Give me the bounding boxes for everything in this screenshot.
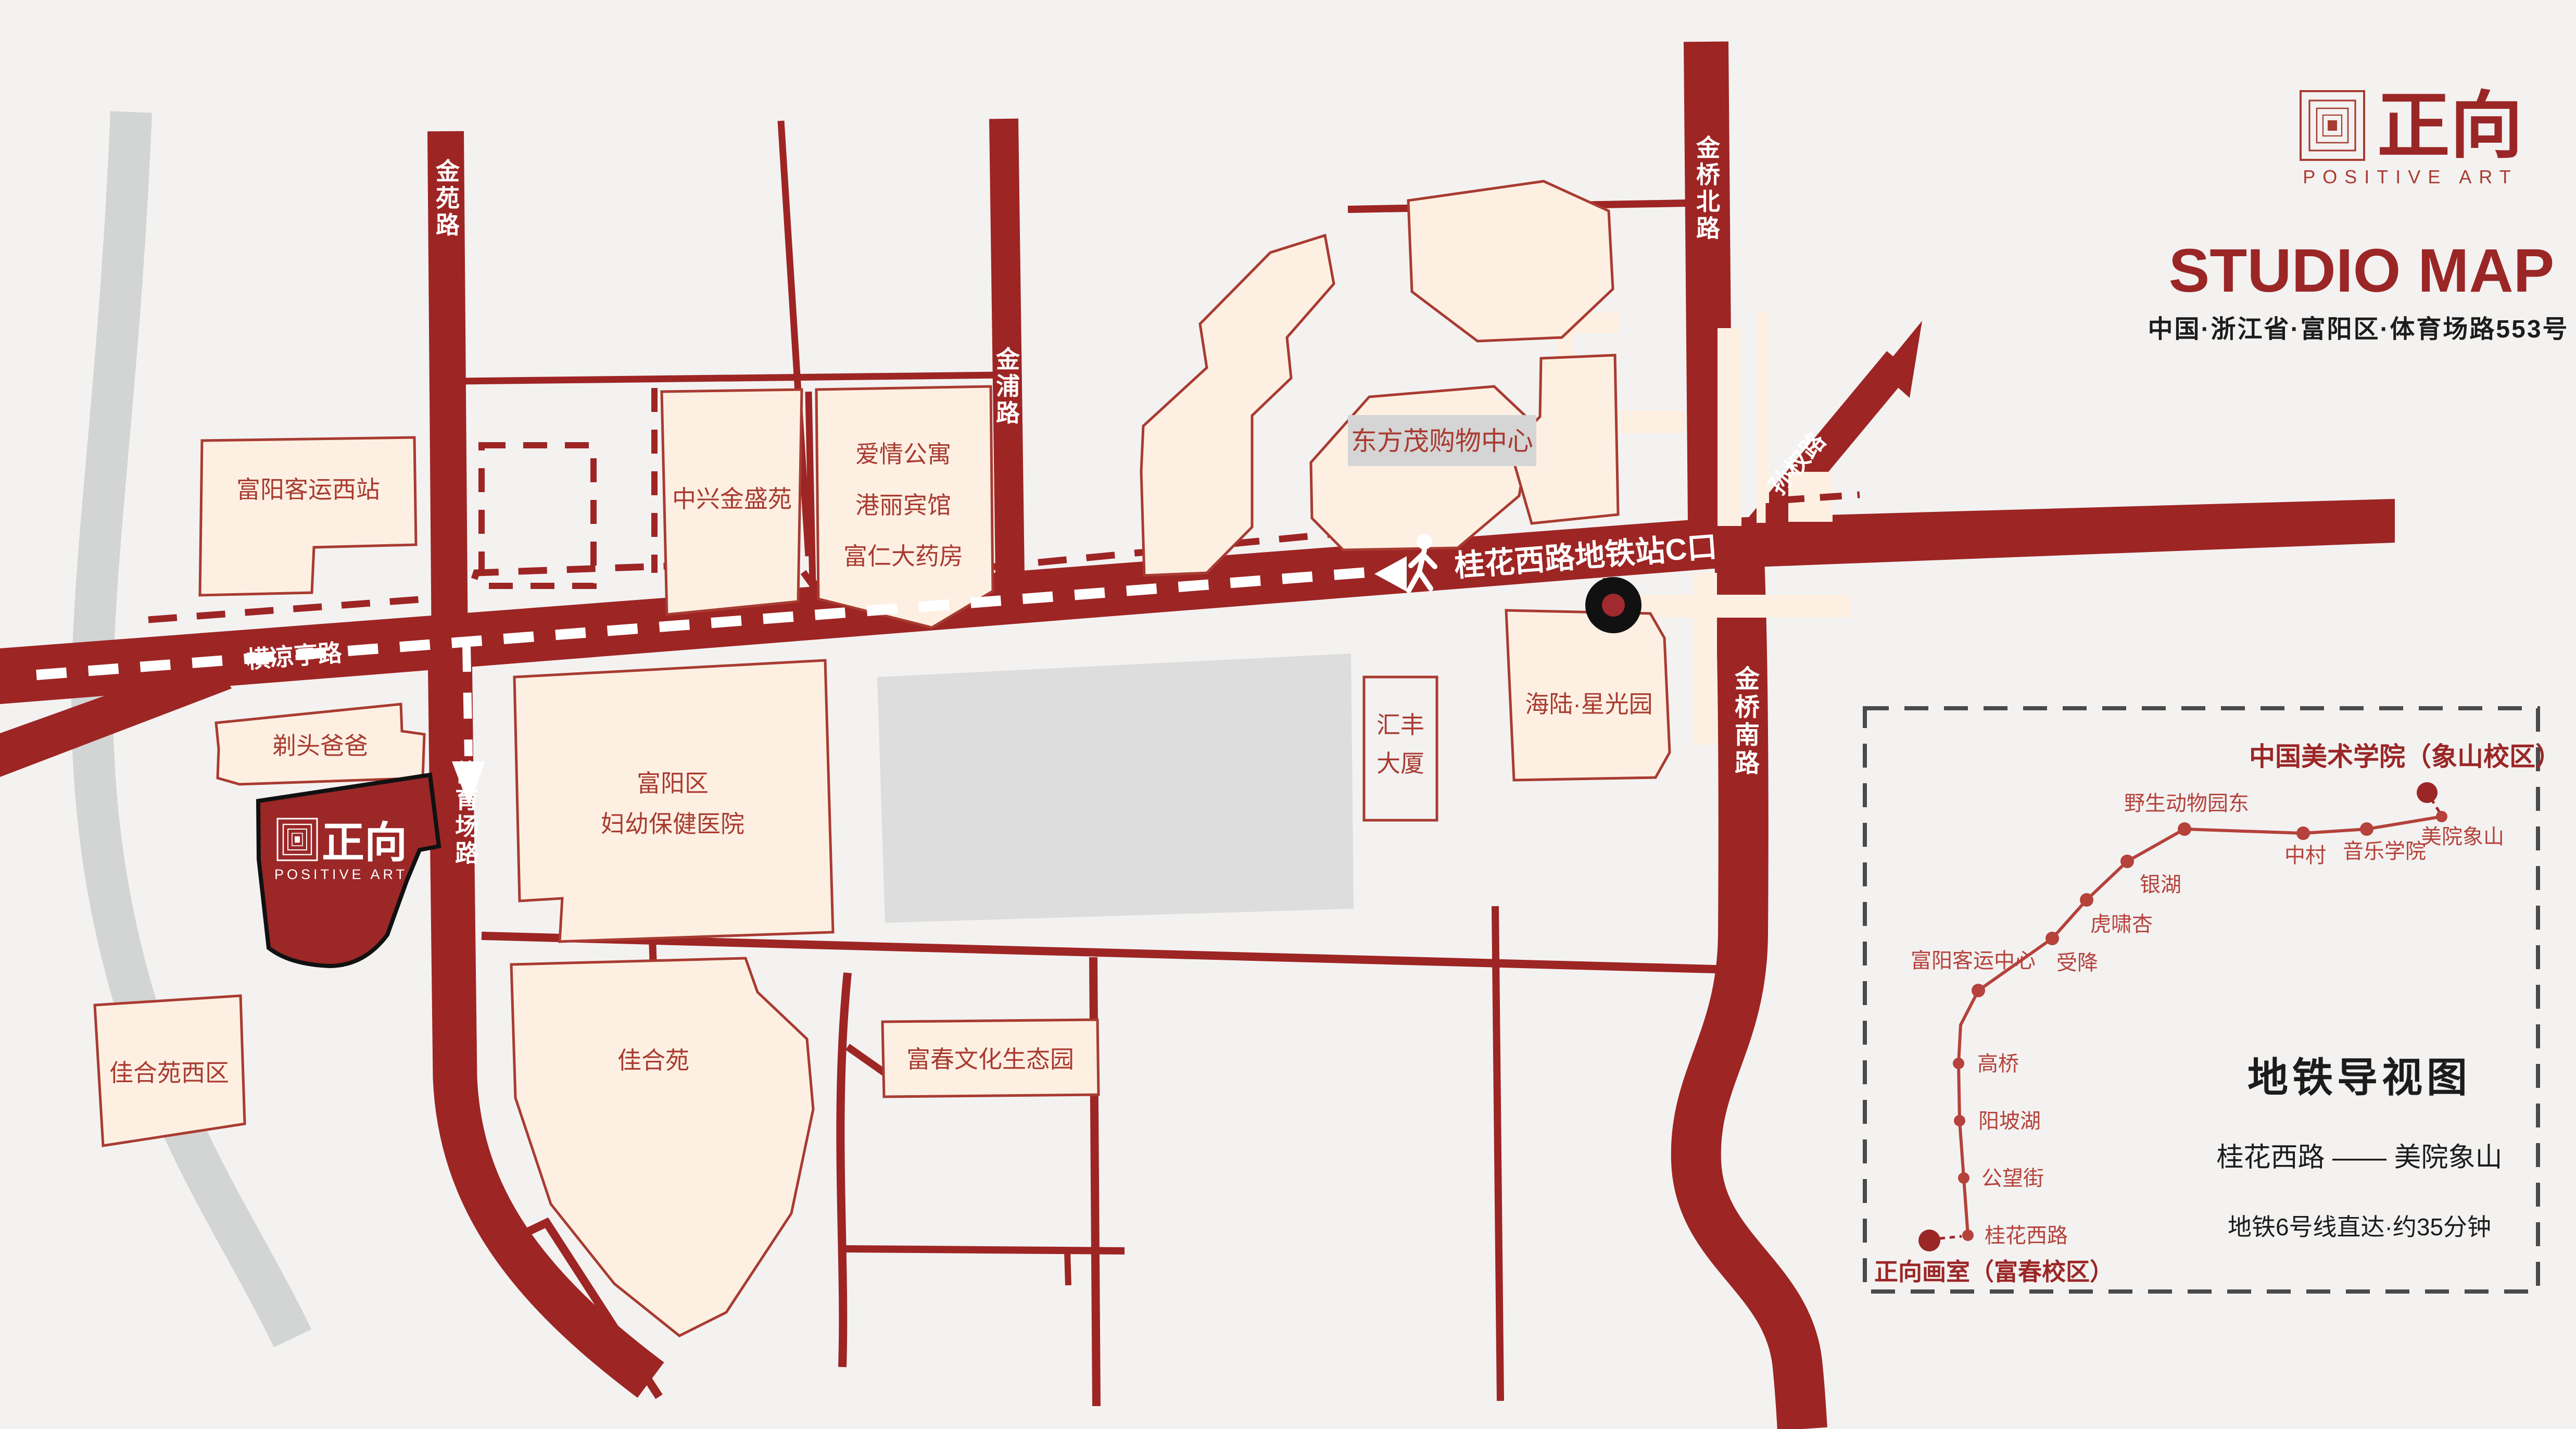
label-fuchun-park: 富春文化生态园 xyxy=(906,1046,1074,1073)
label-love-apartment: 爱情公寓 xyxy=(855,441,951,468)
label-hospital-1: 富阳区 xyxy=(637,770,709,797)
metro-station-label: 音乐学院 xyxy=(2343,840,2426,863)
metro-station xyxy=(2080,893,2093,907)
label-furen-pharmacy: 富仁大药房 xyxy=(843,543,963,570)
metro-station xyxy=(2360,822,2373,836)
metro-panel-route: 桂花西路 —— 美院象山 xyxy=(2217,1143,2503,1173)
metro-station-label: 高桥 xyxy=(1977,1052,2019,1075)
page-title: STUDIO MAP xyxy=(2169,236,2555,305)
label-jiaheyuan: 佳合苑 xyxy=(617,1047,689,1074)
metro-station-label: 阳坡湖 xyxy=(1978,1110,2041,1133)
metro-panel-title: 地铁导视图 xyxy=(2247,1055,2471,1100)
label-road-jinqiao-south: 金桥南路 xyxy=(1734,666,1760,777)
label-hailu: 海陆·星光园 xyxy=(1525,691,1652,718)
label-huifeng-1: 汇丰 xyxy=(1377,711,1424,738)
label-road-jinqiao-north: 金桥北路 xyxy=(1696,134,1721,242)
road-thin-vert-4 xyxy=(1495,906,1500,1401)
metro-station xyxy=(1954,1115,1965,1126)
building-hospital xyxy=(514,660,833,942)
label-titou-baba: 剃头爸爸 xyxy=(272,732,368,759)
metro-station-label: 富阳客运中心 xyxy=(1911,949,2036,972)
label-west-bus-station: 富阳客运西站 xyxy=(236,476,380,503)
metro-origin-label: 正向画室（富春校区） xyxy=(1874,1258,2114,1285)
metro-station-label: 桂花西路 xyxy=(1985,1224,2068,1247)
metro-station xyxy=(2296,826,2310,840)
origin-dot xyxy=(1918,1230,1940,1251)
metro-station-label: 银湖 xyxy=(2140,873,2181,896)
metro-panel-note: 地铁6号线直达·约35分钟 xyxy=(2228,1213,2491,1240)
brand-name-cn: 正向 xyxy=(2377,85,2523,167)
metro-entrance-marker xyxy=(1585,577,1641,633)
brand-name-en: POSITIVE ART xyxy=(2303,166,2518,187)
label-gangli-hotel: 港丽宾馆 xyxy=(855,492,951,519)
road-thin-horiz-2 xyxy=(843,1249,1125,1251)
metro-station xyxy=(1958,1172,1969,1184)
metro-station xyxy=(2436,811,2447,822)
studio-logo-en: POSITIVE ART xyxy=(274,867,408,882)
metro-terminus-label: 中国美术学院（象山校区） xyxy=(2249,742,2561,771)
metro-station xyxy=(1972,984,1985,997)
label-huifeng-2: 大厦 xyxy=(1377,750,1424,777)
metro-station-label: 野生动物园东 xyxy=(2124,792,2249,815)
label-jiaheyuan-west: 佳合苑西区 xyxy=(109,1059,229,1086)
road-jinqiao-north xyxy=(1706,42,1710,521)
metro-station xyxy=(1962,1230,1974,1241)
metro-station-label: 中村 xyxy=(2284,844,2326,867)
metro-station-label: 受降 xyxy=(2056,951,2098,974)
metro-station-label: 公望街 xyxy=(1981,1167,2044,1190)
studio-logo-icon xyxy=(277,819,317,860)
studio-map-poster: 富阳客运西站 中兴金盛苑 爱情公寓 港丽宾馆 富仁大药房 东方茂购物中心 汇丰 … xyxy=(0,0,2576,1429)
label-zhongxing: 中兴金盛苑 xyxy=(672,485,792,512)
metro-station-label: 美院象山 xyxy=(2421,825,2504,848)
label-road-jinpu: 金浦路 xyxy=(995,346,1020,427)
terminus-dot xyxy=(2417,782,2438,803)
metro-station xyxy=(2120,855,2134,868)
studio-logo-cn: 正向 xyxy=(322,819,407,867)
label-hospital-2: 妇幼保健医院 xyxy=(601,810,744,837)
page-address: 中国·浙江省·富阳区·体育场路553号 xyxy=(2148,316,2569,343)
label-dongfangmao: 东方茂购物中心 xyxy=(1351,427,1533,456)
metro-station xyxy=(2178,822,2191,836)
metro-station-label: 虎啸杏 xyxy=(2090,913,2153,936)
road-thin-stub-b xyxy=(1067,1251,1068,1285)
metro-station xyxy=(1953,1058,1964,1069)
gray-block xyxy=(877,654,1354,923)
metro-station xyxy=(2045,932,2059,945)
label-road-jinyuan: 金苑路 xyxy=(435,158,460,239)
tiyuchang-route-dashes xyxy=(466,646,469,756)
